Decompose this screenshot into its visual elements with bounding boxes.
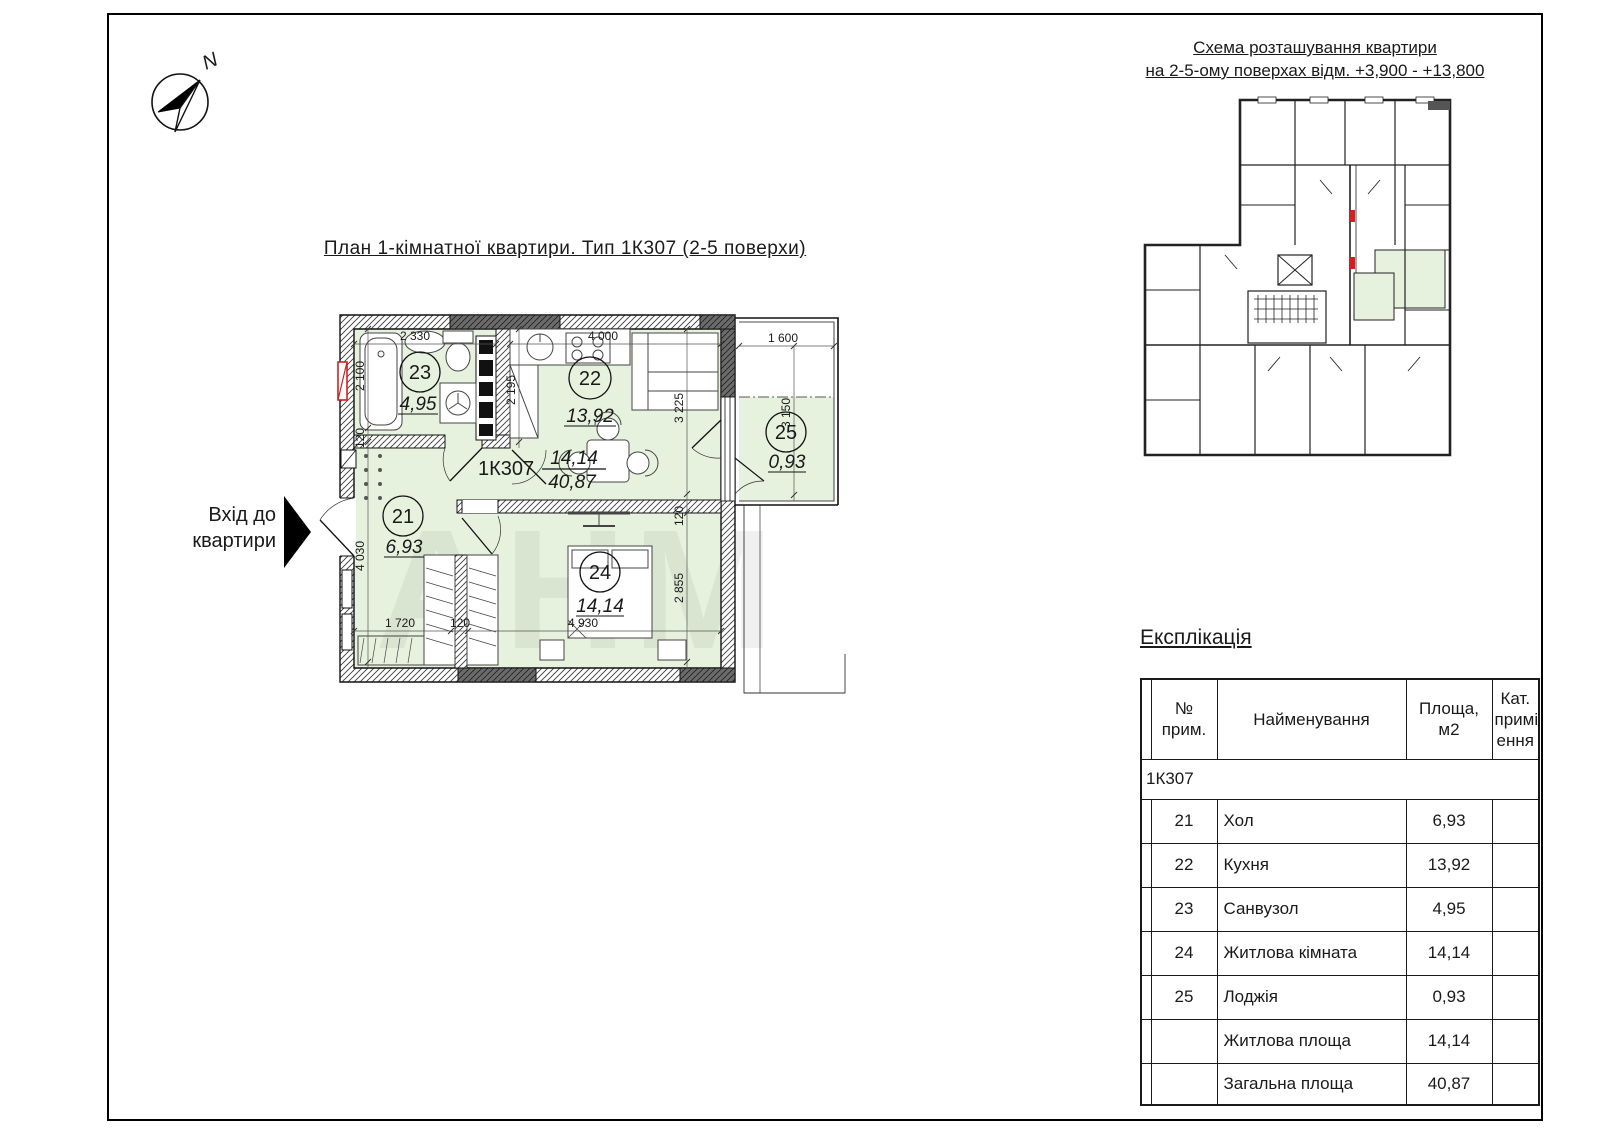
svg-text:0,93: 0,93 xyxy=(769,452,806,473)
cell-total-name: Житлова площа xyxy=(1217,1019,1406,1063)
wardrobe xyxy=(467,555,498,665)
dim-label: 120 xyxy=(450,616,470,630)
svg-text:13,92: 13,92 xyxy=(566,406,614,427)
scheme-title-line2: на 2-5-ому поверхах відм. +3,900 - +13,8… xyxy=(1090,59,1540,82)
svg-text:4,95: 4,95 xyxy=(400,394,437,415)
cell-number: 22 xyxy=(1151,843,1217,887)
header-number: № прим. xyxy=(1151,679,1217,759)
cell-name: Хол xyxy=(1217,799,1406,843)
plan-title: План 1-кімнатної квартири. Тип 1К307 (2-… xyxy=(280,238,850,260)
table-row: 24 Житлова кімната 14,14 xyxy=(1141,931,1539,975)
dark-block xyxy=(1428,101,1450,110)
cell-area: 0,93 xyxy=(1406,975,1492,1019)
table-group-row: 1К307 xyxy=(1141,759,1539,799)
svg-text:24: 24 xyxy=(589,562,611,584)
dim-label: 2 330 xyxy=(400,329,430,343)
scheme-title-line1: Схема розташування квартири xyxy=(1090,36,1540,59)
explication-table: № прим. Найменування Площа, м2 Кат. прим… xyxy=(1140,678,1540,1106)
dim-label: 4 030 xyxy=(353,541,367,571)
table-row: 22 Кухня 13,92 xyxy=(1141,843,1539,887)
cell-category xyxy=(1492,1019,1539,1063)
svg-text:23: 23 xyxy=(409,362,431,384)
entrance-label: Вхід до квартири xyxy=(168,502,276,554)
header-category: Кат. приміщ ення xyxy=(1492,679,1539,759)
compass-needle-dark xyxy=(158,80,200,112)
group-label: 1К307 xyxy=(1141,759,1539,799)
cell-category xyxy=(1492,887,1539,931)
wall-dark-segment xyxy=(680,668,735,682)
explication-title: Експлікація xyxy=(1140,626,1252,650)
dim-label: 120 xyxy=(672,506,686,526)
cell-area: 4,95 xyxy=(1406,887,1492,931)
svg-text:25: 25 xyxy=(775,422,797,444)
wall-dark-segment xyxy=(458,668,536,682)
dim-label: 2 855 xyxy=(672,573,686,603)
wall-box xyxy=(342,614,352,650)
balcony-window xyxy=(721,397,735,501)
table-header-row: № прим. Найменування Площа, м2 Кат. прим… xyxy=(1141,679,1539,759)
wardrobe xyxy=(424,555,455,665)
wall-dark-segment xyxy=(450,315,560,329)
highlighted-apartment-part xyxy=(1354,273,1394,320)
wall-box xyxy=(342,570,352,608)
dim-label: 4 930 xyxy=(568,616,598,630)
entrance-label-line2: квартири xyxy=(168,528,276,554)
building-scheme-drawing xyxy=(1130,95,1460,465)
dim-label: 3 225 xyxy=(672,393,686,423)
dim-label: 120 xyxy=(353,428,367,448)
wall-bath-hall xyxy=(354,435,445,448)
cell-name: Кухня xyxy=(1217,843,1406,887)
wall-dark-segment xyxy=(700,315,735,329)
scheme-title: Схема розташування квартири на 2-5-ому п… xyxy=(1090,36,1540,82)
riser-marker-red xyxy=(1349,257,1355,269)
table-row: 21 Хол 6,93 xyxy=(1141,799,1539,843)
dim-label: 1 600 xyxy=(768,331,798,345)
dim-label: 2 100 xyxy=(353,361,367,391)
svg-text:14,14: 14,14 xyxy=(576,596,624,617)
north-arrow: N xyxy=(130,40,240,150)
cell-area: 6,93 xyxy=(1406,799,1492,843)
toilet-bowl xyxy=(446,343,470,371)
north-letter: N xyxy=(199,48,222,74)
cell-area: 13,92 xyxy=(1406,843,1492,887)
wall-hall-room24 xyxy=(455,555,467,668)
cell-category xyxy=(1492,931,1539,975)
entrance-label-line1: Вхід до xyxy=(168,502,276,528)
total-area-value: 40,87 xyxy=(548,472,597,493)
door-opening-room24 xyxy=(462,500,498,513)
cell-total-name: Загальна площа xyxy=(1217,1063,1406,1105)
cell-category xyxy=(1492,843,1539,887)
cell-name: Санвузол xyxy=(1217,887,1406,931)
svg-text:22: 22 xyxy=(579,368,601,390)
cell-category xyxy=(1492,1063,1539,1105)
cell-total-area: 14,14 xyxy=(1406,1019,1492,1063)
table-row: 25 Лоджія 0,93 xyxy=(1141,975,1539,1019)
dim-label: 2 195 xyxy=(504,375,518,405)
cell-number: 25 xyxy=(1151,975,1217,1019)
cell-number: 21 xyxy=(1151,799,1217,843)
riser-marker-red xyxy=(1349,210,1355,222)
cell-total-area: 40,87 xyxy=(1406,1063,1492,1105)
header-area: Площа, м2 xyxy=(1406,679,1492,759)
cell-name: Житлова кімната xyxy=(1217,931,1406,975)
dim-label: 4 000 xyxy=(588,329,618,343)
cell-category xyxy=(1492,799,1539,843)
cell-category xyxy=(1492,975,1539,1019)
header-spacer-cell xyxy=(1141,679,1151,759)
svg-text:21: 21 xyxy=(392,506,414,528)
nightstand xyxy=(658,640,686,660)
cell-name: Лоджія xyxy=(1217,975,1406,1019)
wall-dark-segment xyxy=(721,329,735,397)
dim-label: 1 720 xyxy=(385,616,415,630)
table-total-row: Загальна площа 40,87 xyxy=(1141,1063,1539,1105)
table-row: 23 Санвузол 4,95 xyxy=(1141,887,1539,931)
toilet-tank xyxy=(443,331,473,343)
chair xyxy=(627,452,649,474)
table-total-row: Житлова площа 14,14 xyxy=(1141,1019,1539,1063)
living-area-value: 14,14 xyxy=(550,448,598,469)
svg-text:6,93: 6,93 xyxy=(386,537,423,558)
type-code: 1К307 xyxy=(478,458,534,480)
floor-plan-drawing: АНМ xyxy=(300,298,850,698)
cell-area: 14,14 xyxy=(1406,931,1492,975)
cell-number: 24 xyxy=(1151,931,1217,975)
header-name: Найменування xyxy=(1217,679,1406,759)
cell-number: 23 xyxy=(1151,887,1217,931)
nightstand xyxy=(540,640,564,660)
